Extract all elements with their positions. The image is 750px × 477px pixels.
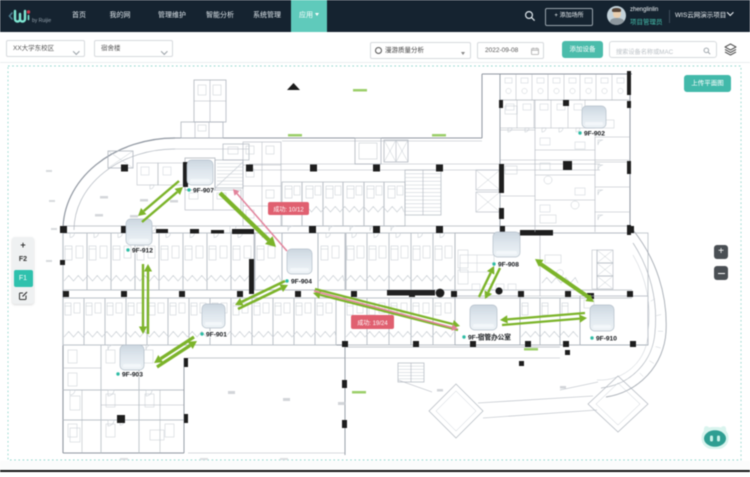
svg-text:9F-901: 9F-901 bbox=[206, 332, 227, 339]
svg-text:9F-903: 9F-903 bbox=[122, 372, 143, 379]
svg-text:9F-910: 9F-910 bbox=[596, 336, 617, 343]
svg-text:9F-904: 9F-904 bbox=[291, 279, 312, 286]
svg-text:9F-902: 9F-902 bbox=[584, 131, 605, 138]
svg-text:9F-908: 9F-908 bbox=[498, 262, 519, 269]
svg-text:成功: 19/24: 成功: 19/24 bbox=[357, 319, 388, 327]
svg-text:9F-912: 9F-912 bbox=[132, 248, 153, 255]
svg-text:9F-907: 9F-907 bbox=[193, 188, 214, 195]
svg-text:9F-宿管办公室: 9F-宿管办公室 bbox=[468, 333, 511, 342]
svg-text:成功: 10/12: 成功: 10/12 bbox=[273, 206, 304, 214]
svg-text:by Ruijie: by Ruijie bbox=[32, 18, 51, 24]
